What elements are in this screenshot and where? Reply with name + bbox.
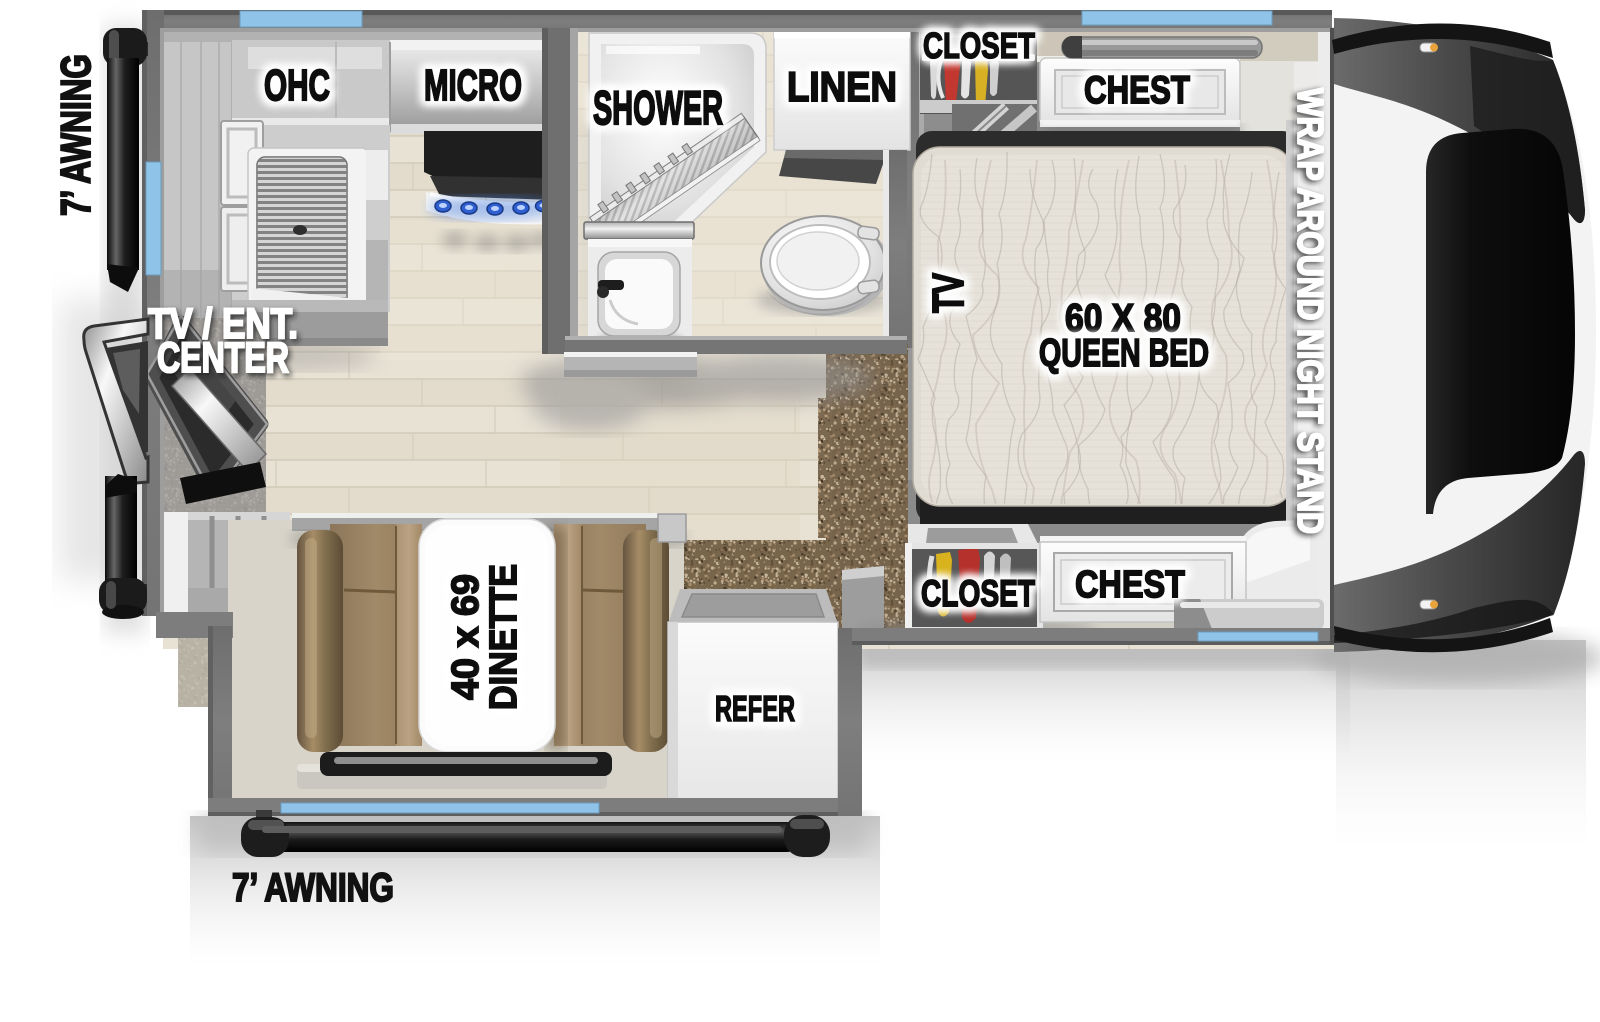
svg-text:CHEST: CHEST (1075, 564, 1185, 606)
svg-text:40 x 69: 40 x 69 (445, 574, 487, 700)
svg-text:7’ AWNING: 7’ AWNING (52, 54, 99, 216)
svg-text:WRAP AROUND NIGHT STAND: WRAP AROUND NIGHT STAND (1290, 88, 1331, 534)
svg-text:DINETTE: DINETTE (483, 564, 525, 710)
svg-text:OHC: OHC (264, 61, 330, 110)
svg-text:MICRO: MICRO (424, 61, 522, 110)
svg-text:CLOSET: CLOSET (921, 573, 1035, 614)
svg-text:TV: TV (924, 273, 973, 313)
svg-text:LINEN: LINEN (787, 63, 897, 110)
svg-text:QUEEN BED: QUEEN BED (1039, 332, 1209, 375)
svg-text:CHEST: CHEST (1084, 69, 1190, 112)
svg-text:REFER: REFER (715, 688, 795, 729)
svg-text:7’ AWNING: 7’ AWNING (232, 866, 394, 910)
svg-text:CENTER: CENTER (157, 334, 289, 382)
svg-text:SHOWER: SHOWER (593, 81, 723, 134)
svg-text:CLOSET: CLOSET (923, 25, 1035, 66)
